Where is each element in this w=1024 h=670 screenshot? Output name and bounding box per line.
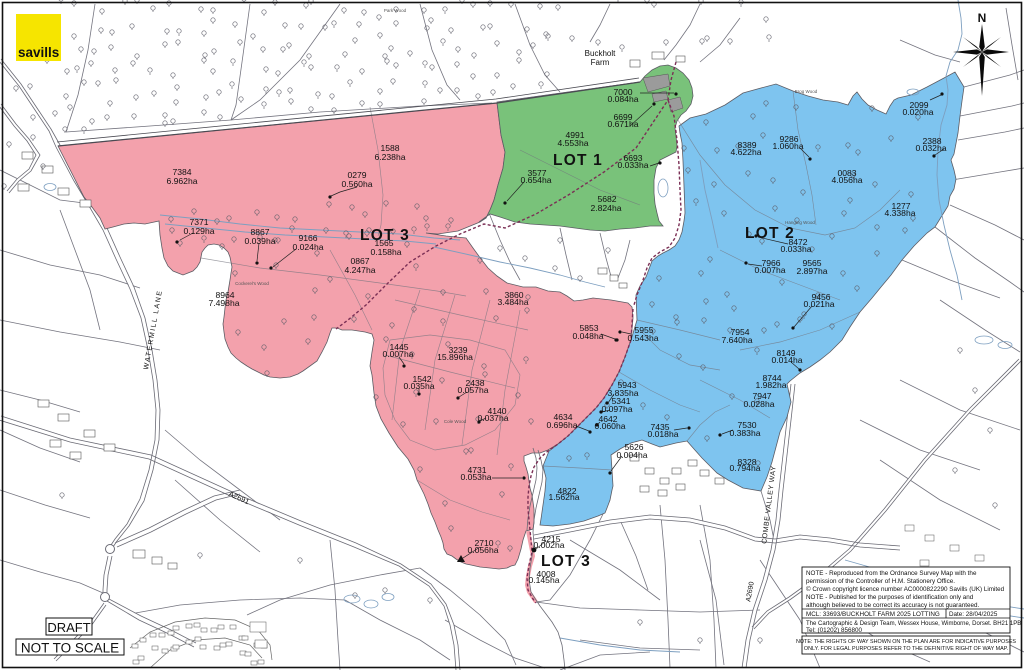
svg-text:0.145ha: 0.145ha (528, 575, 559, 585)
svg-text:0.035ha: 0.035ha (403, 381, 434, 391)
svg-text:0.084ha: 0.084ha (607, 94, 638, 104)
svg-text:3.484ha: 3.484ha (497, 297, 528, 307)
svg-text:Date: 28/04/2025: Date: 28/04/2025 (949, 611, 998, 618)
svg-text:0.007ha: 0.007ha (754, 265, 785, 275)
svg-text:0.383ha: 0.383ha (729, 428, 760, 438)
svg-text:0.060ha: 0.060ha (594, 421, 625, 431)
svg-text:1.982ha: 1.982ha (755, 380, 786, 390)
svg-text:4.247ha: 4.247ha (344, 265, 375, 275)
svg-text:NOTE - Published for the purpo: NOTE - Published for the purposes of ide… (806, 594, 974, 601)
svg-text:0.024ha: 0.024ha (292, 242, 323, 252)
svg-text:© Crown copyright licence numb: © Crown copyright licence number AC00008… (806, 585, 1005, 593)
svg-text:0.021ha: 0.021ha (803, 299, 834, 309)
svg-text:0.543ha: 0.543ha (627, 333, 658, 343)
svg-text:0.018ha: 0.018ha (647, 429, 678, 439)
svg-text:ONLY. FOR LEGAL PURPOSES REFER: ONLY. FOR LEGAL PURPOSES REFER TO THE DE… (804, 646, 1008, 652)
svg-text:6.238ha: 6.238ha (374, 152, 405, 162)
svg-text:savills: savills (18, 45, 59, 60)
svg-text:Brog Wood: Brog Wood (795, 89, 818, 94)
svg-text:7.640ha: 7.640ha (721, 335, 752, 345)
svg-text:0.671ha: 0.671ha (607, 119, 638, 129)
svg-text:0.053ha: 0.053ha (460, 472, 491, 482)
svg-text:0.794ha: 0.794ha (729, 463, 760, 473)
svg-text:1.060ha: 1.060ha (772, 141, 803, 151)
svg-text:permission of the Controller o: permission of the Controller of H.M. Sta… (806, 578, 955, 585)
svg-text:0.560ha: 0.560ha (341, 179, 372, 189)
svg-text:NOTE: THE RIGHTS OF WAY SHOWN: NOTE: THE RIGHTS OF WAY SHOWN ON THE PLA… (796, 639, 1016, 645)
svg-text:15.896ha: 15.896ha (437, 352, 473, 362)
svg-text:6.962ha: 6.962ha (166, 176, 197, 186)
svg-text:DRAFT: DRAFT (47, 620, 90, 635)
svg-text:0.696ha: 0.696ha (546, 420, 577, 430)
svg-text:0.048ha: 0.048ha (572, 331, 603, 341)
svg-text:0.002ha: 0.002ha (533, 540, 564, 550)
svg-text:although believed to be correc: although believed to be correct its accu… (806, 602, 980, 609)
svg-text:0.020ha: 0.020ha (902, 107, 933, 117)
svg-text:0.004ha: 0.004ha (616, 450, 647, 460)
svg-text:MCL: 33693/BUCKHOLT FARM 2025: MCL: 33693/BUCKHOLT FARM 2025 LOTTING (806, 611, 940, 618)
svg-text:0.097ha: 0.097ha (601, 404, 632, 414)
svg-text:1.562ha: 1.562ha (548, 492, 579, 502)
svg-text:0.032ha: 0.032ha (915, 143, 946, 153)
svg-text:Cole Wood: Cole Wood (444, 419, 467, 424)
svg-text:2.824ha: 2.824ha (590, 203, 621, 213)
svg-text:Cockerel's Wood: Cockerel's Wood (235, 281, 269, 286)
svg-text:4.338ha: 4.338ha (884, 208, 915, 218)
svg-text:4.553ha: 4.553ha (557, 138, 588, 148)
svg-text:LOT 3: LOT 3 (360, 227, 410, 244)
svg-text:0.014ha: 0.014ha (771, 355, 802, 365)
svg-text:N: N (978, 11, 987, 25)
svg-text:NOTE - Reproduced from the Ord: NOTE - Reproduced from the Ordnance Surv… (806, 570, 977, 577)
svg-text:Hanging Wood: Hanging Wood (785, 220, 815, 225)
svg-text:4.622ha: 4.622ha (730, 147, 761, 157)
svg-text:LOT 3: LOT 3 (541, 553, 591, 570)
svg-text:LOT 2: LOT 2 (745, 225, 795, 242)
svg-text:0.033ha: 0.033ha (780, 244, 811, 254)
svg-text:0.654ha: 0.654ha (520, 175, 551, 185)
svg-text:Park Wood: Park Wood (384, 8, 407, 13)
svg-text:7.498ha: 7.498ha (208, 298, 239, 308)
svg-text:NOT TO SCALE: NOT TO SCALE (21, 641, 119, 656)
svg-text:0.033ha: 0.033ha (617, 160, 648, 170)
svg-text:0.028ha: 0.028ha (743, 399, 774, 409)
svg-text:0.129ha: 0.129ha (183, 226, 214, 236)
svg-text:LOT 1: LOT 1 (553, 152, 603, 169)
svg-text:0.057ha: 0.057ha (457, 385, 488, 395)
svg-text:0.007ha: 0.007ha (382, 349, 413, 359)
svg-text:2.897ha: 2.897ha (796, 266, 827, 276)
svg-text:0.056ha: 0.056ha (467, 545, 498, 555)
svg-text:0.039ha: 0.039ha (244, 236, 275, 246)
svg-text:0.158ha: 0.158ha (370, 247, 401, 257)
svg-text:4.056ha: 4.056ha (831, 175, 862, 185)
svg-text:Tel: (01202) 856800: Tel: (01202) 856800 (806, 627, 863, 634)
svg-text:0.037ha: 0.037ha (477, 413, 508, 423)
